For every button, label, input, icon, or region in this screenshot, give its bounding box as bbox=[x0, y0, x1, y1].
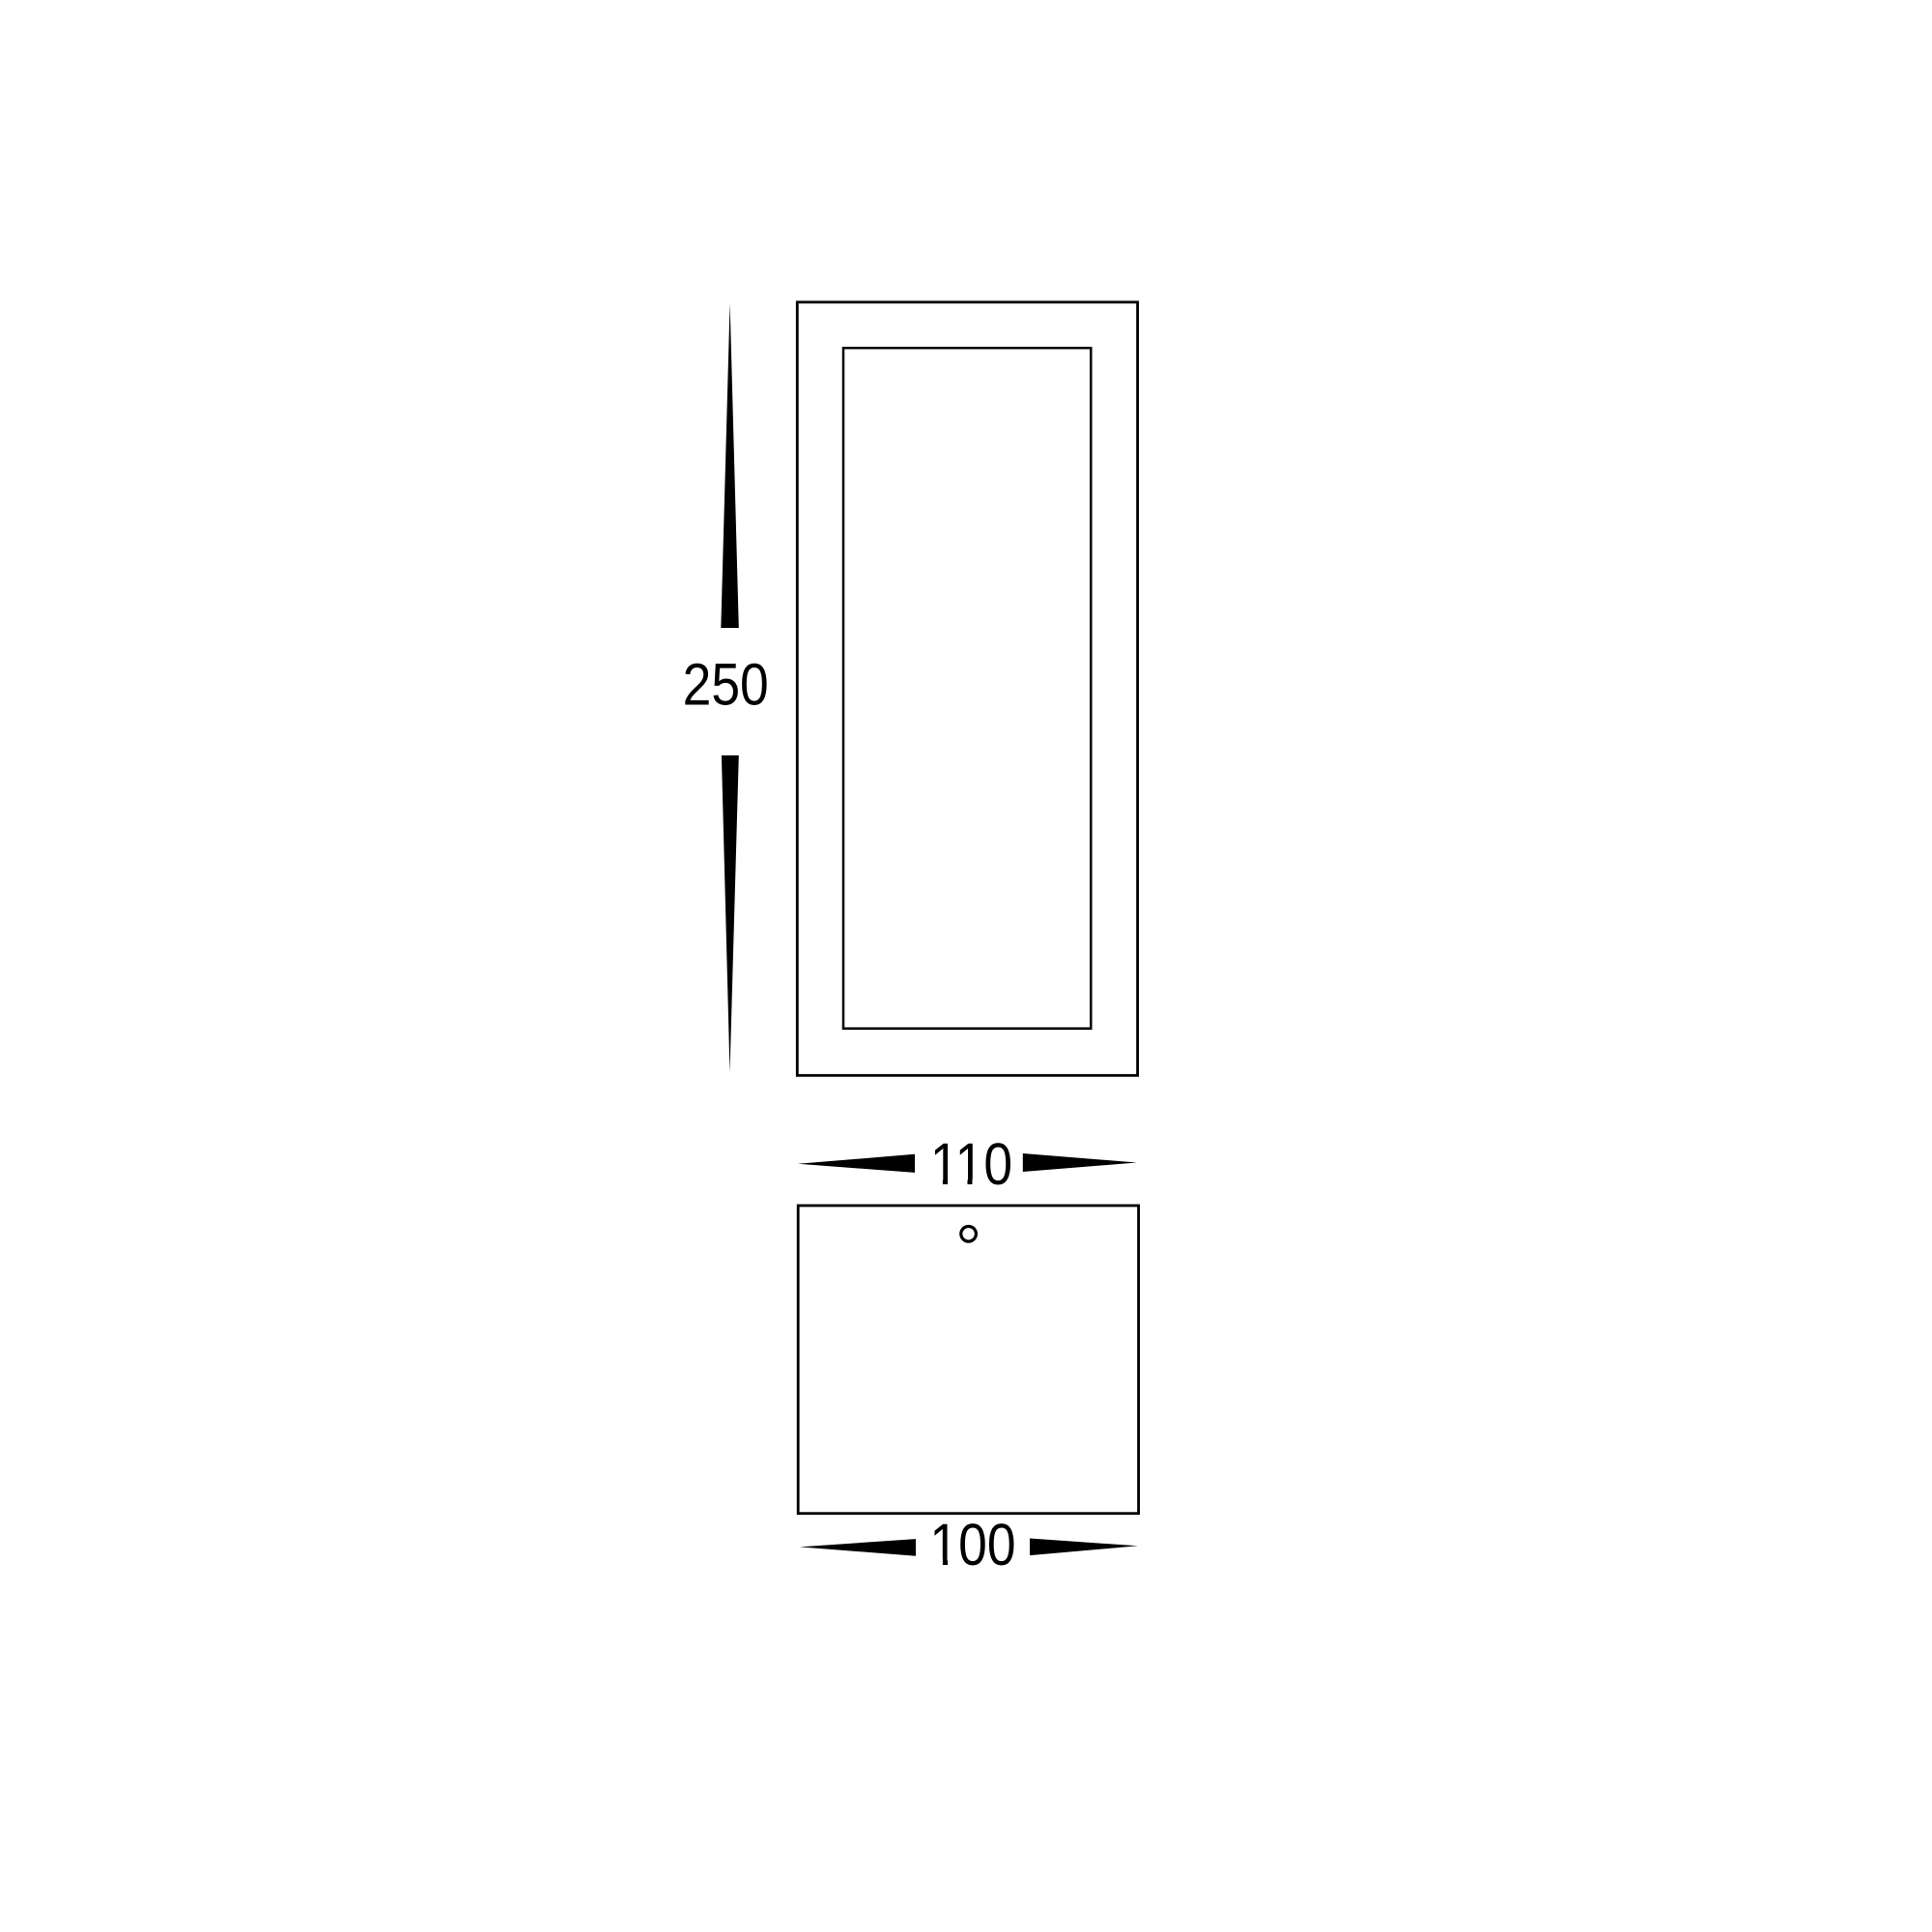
svg-text:100: 100 bbox=[929, 1513, 1015, 1578]
svg-text:110: 110 bbox=[930, 1132, 1012, 1198]
svg-text:250: 250 bbox=[683, 652, 769, 718]
